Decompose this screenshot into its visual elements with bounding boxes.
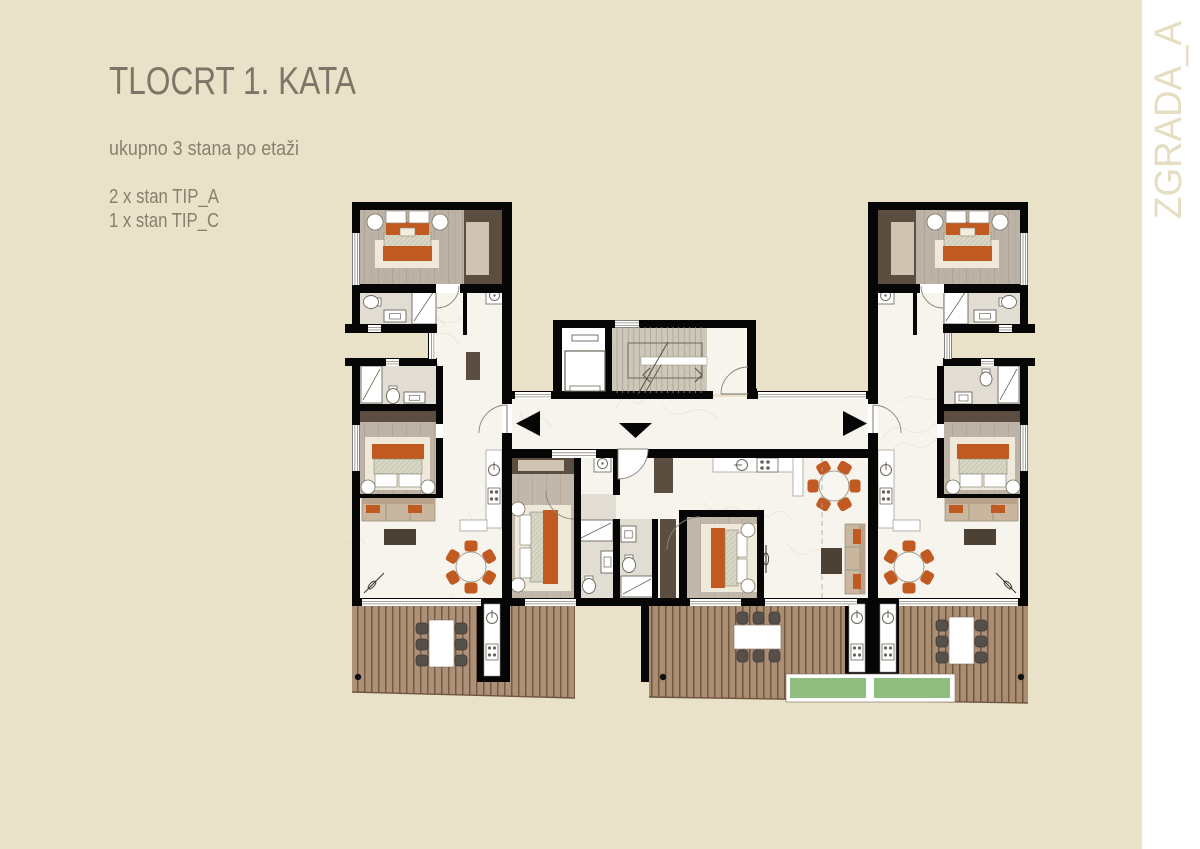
svg-text:ukupno 3 stana po etaži: ukupno 3 stana po etaži xyxy=(109,138,299,160)
svg-text:TLOCRT 1. KATA: TLOCRT 1. KATA xyxy=(109,60,356,103)
svg-text:1 x stan TIP_C: 1 x stan TIP_C xyxy=(109,210,219,232)
svg-text:ZGRADA_A: ZGRADA_A xyxy=(1148,20,1190,219)
svg-text:2 x stan TIP_A: 2 x stan TIP_A xyxy=(109,186,220,208)
